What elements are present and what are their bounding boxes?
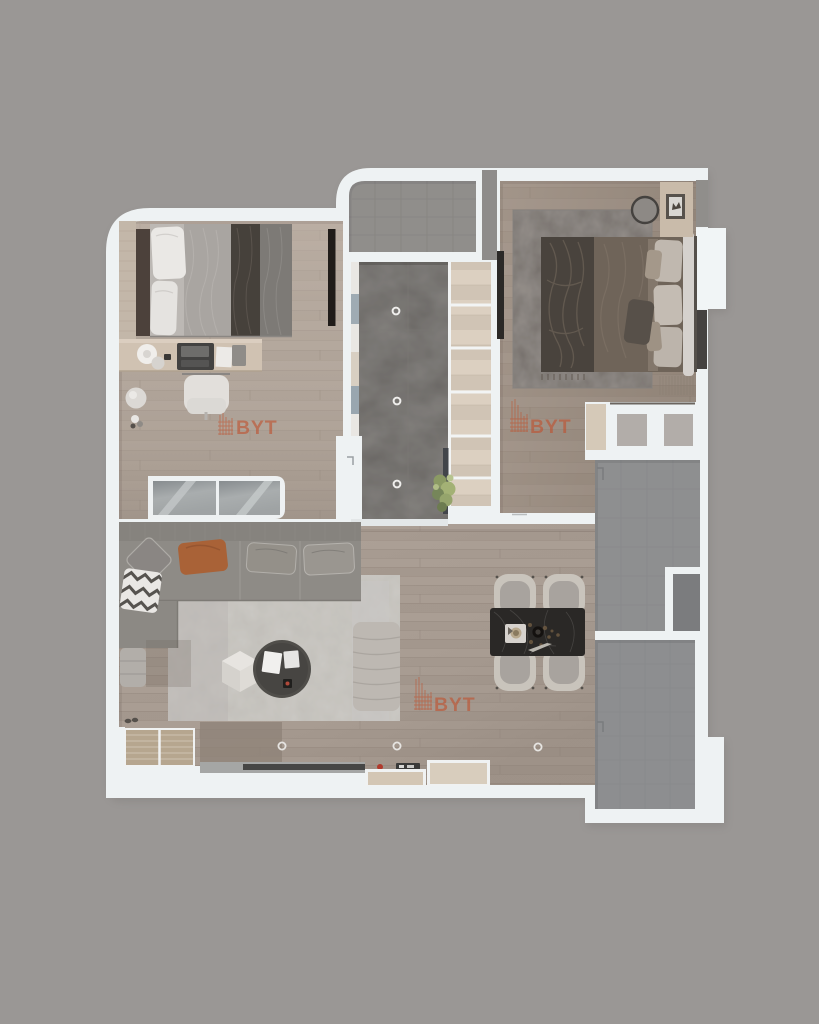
svg-text:BYT: BYT [530,416,571,438]
svg-text:BYT: BYT [236,417,277,439]
svg-text:BYT: BYT [434,694,475,716]
